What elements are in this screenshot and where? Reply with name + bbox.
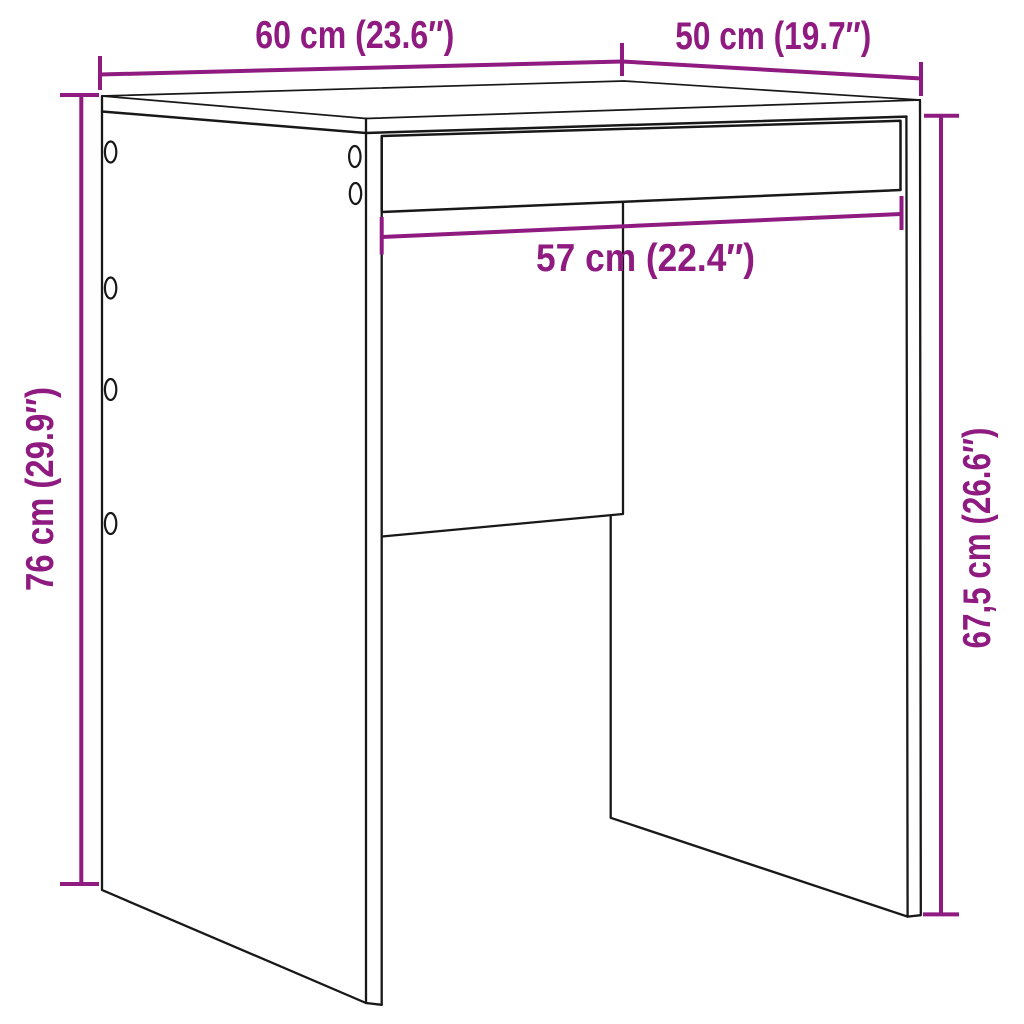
- svg-text:67,5 cm (26.6″): 67,5 cm (26.6″): [956, 428, 999, 649]
- svg-text:50 cm (19.7″): 50 cm (19.7″): [675, 15, 871, 58]
- svg-text:76 cm (29.9″): 76 cm (29.9″): [19, 387, 62, 591]
- svg-text:57 cm (22.4″): 57 cm (22.4″): [536, 237, 755, 280]
- svg-text:60 cm (23.6″): 60 cm (23.6″): [255, 14, 454, 57]
